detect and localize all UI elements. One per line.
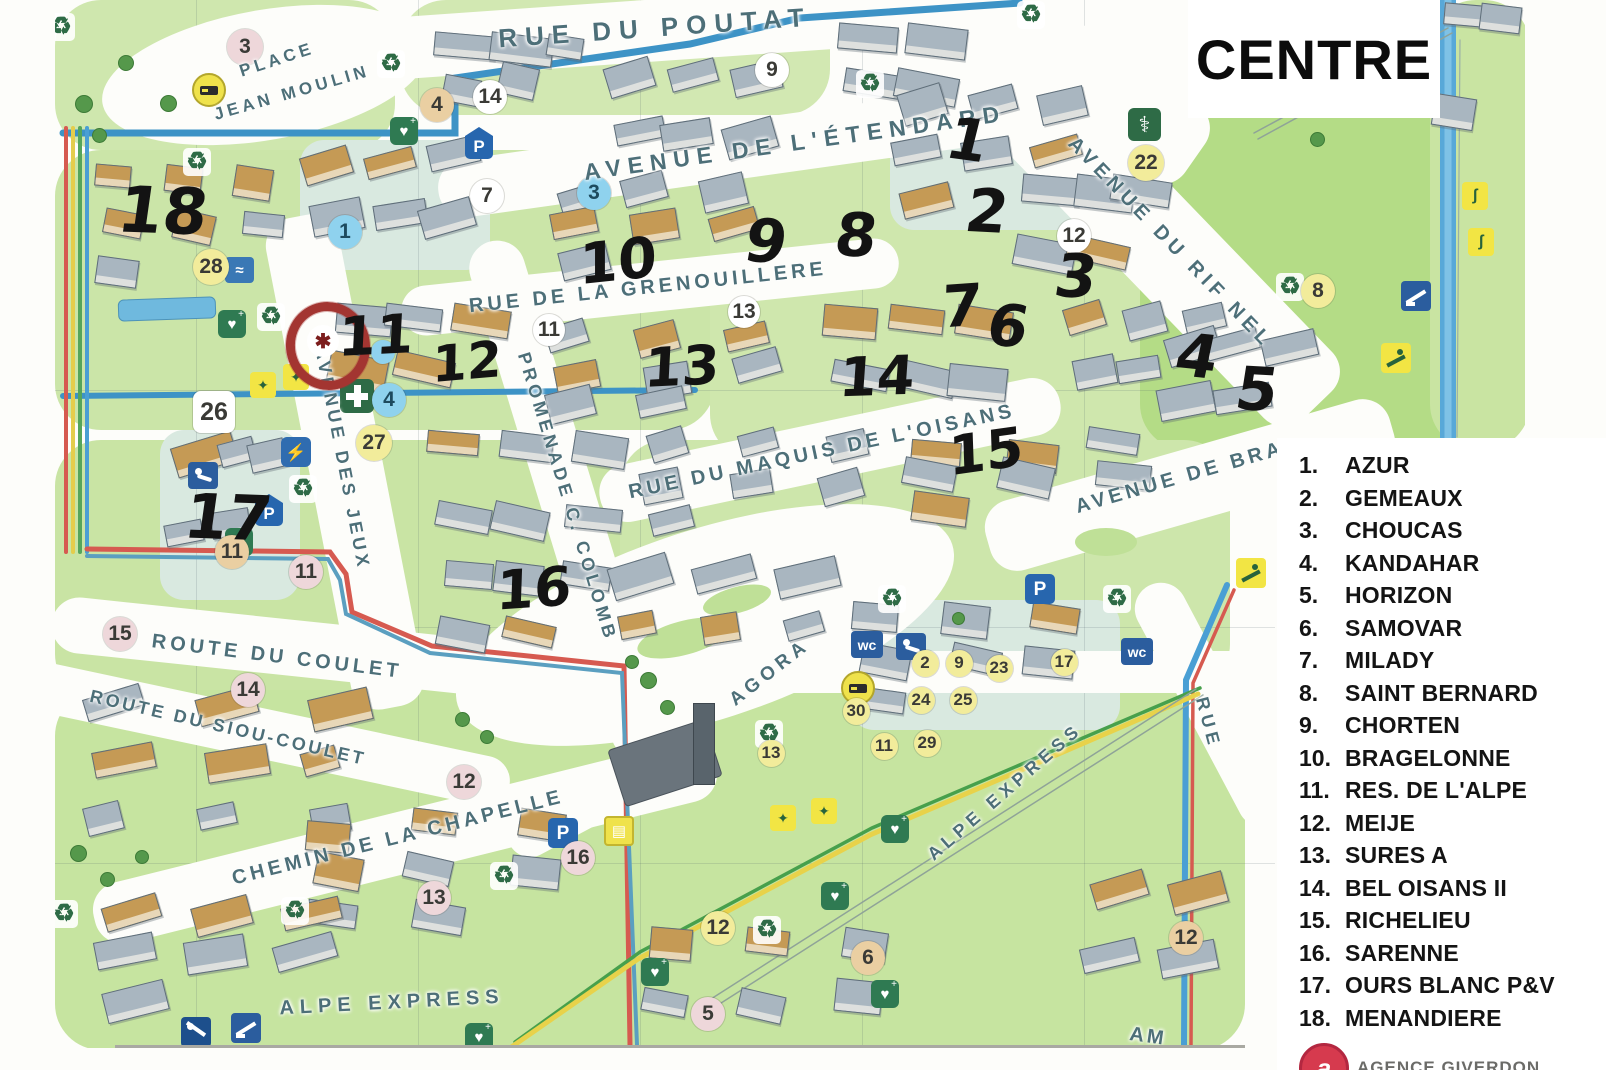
map-marker-1: 1	[328, 215, 362, 249]
legend-item: 11.RES. DE L'ALPE	[1299, 777, 1606, 810]
tree	[135, 850, 149, 864]
map-marker-30: 30	[843, 698, 870, 725]
building	[94, 255, 139, 289]
map-marker-4: 4	[420, 88, 454, 122]
legend-item: 9.CHORTEN	[1299, 712, 1606, 745]
handwritten-number-8: 8	[831, 205, 881, 266]
building	[837, 22, 899, 53]
handwritten-number-18: 18	[114, 179, 212, 246]
recycle-icon: ♻	[1276, 273, 1304, 301]
legend-item: 17.OURS BLANC P&V	[1299, 972, 1606, 1005]
legend-item: 16.SARENNE	[1299, 940, 1606, 973]
handwritten-number-16: 16	[496, 559, 573, 619]
map-marker-12: 12	[447, 765, 481, 799]
tree	[70, 845, 87, 862]
legend-item-number: 14.	[1299, 875, 1345, 902]
building	[822, 304, 879, 341]
map-marker-9: 9	[946, 650, 973, 677]
tree	[118, 55, 134, 71]
legend-item-label: MEIJE	[1345, 810, 1415, 837]
legend-item: 5.HORIZON	[1299, 582, 1606, 615]
legend-panel: 1.AZUR2.GEMEAUX3.CHOUCAS4.KANDAHAR5.HORI…	[1277, 438, 1606, 1070]
legend-item-number: 13.	[1299, 842, 1345, 869]
map-marker-13: 13	[758, 740, 785, 767]
tree	[100, 872, 115, 887]
tree	[480, 730, 494, 744]
defibrillator-icon: ♥	[881, 815, 909, 843]
map-marker-16: 16	[561, 841, 595, 875]
land-area	[1430, 0, 1530, 450]
legend-item-label: BRAGELONNE	[1345, 745, 1511, 772]
legend-item-label: OURS BLANC P&V	[1345, 972, 1555, 999]
handwritten-number-7: 7	[941, 275, 983, 336]
legend-item: 13.SURES A	[1299, 842, 1606, 875]
map-marker-13: 13	[728, 296, 760, 328]
building	[1479, 3, 1523, 35]
map-marker-27: 27	[356, 425, 392, 461]
legend-item: 14.BEL OISANS II	[1299, 875, 1606, 908]
legend-item-number: 12.	[1299, 810, 1345, 837]
ev-plug-icon: ⚡	[281, 437, 311, 467]
skier-icon	[1381, 343, 1411, 373]
legend-item: 6.SAMOVAR	[1299, 615, 1606, 648]
legend-item-label: CHORTEN	[1345, 712, 1460, 739]
legend-item: 4.KANDAHAR	[1299, 550, 1606, 583]
tree	[160, 95, 177, 112]
legend-item-number: 17.	[1299, 972, 1345, 999]
legend-item-label: RICHELIEU	[1345, 907, 1471, 934]
building	[242, 211, 285, 238]
playground-icon: ✦	[250, 372, 276, 398]
recycle-icon: ♻	[856, 70, 884, 98]
handwritten-number-15: 15	[948, 420, 1024, 485]
recycle-icon: ♻	[257, 303, 285, 331]
building	[940, 601, 991, 639]
legend-item-label: SAMOVAR	[1345, 615, 1462, 642]
building	[946, 363, 1008, 402]
defibrillator-icon: ♥	[871, 980, 899, 1008]
handwritten-number-17: 17	[181, 486, 276, 551]
tree	[92, 128, 107, 143]
legend-list: 1.AZUR2.GEMEAUX3.CHOUCAS4.KANDAHAR5.HORI…	[1299, 452, 1606, 1037]
handwritten-number-14: 14	[838, 349, 917, 406]
church-tower	[693, 703, 715, 785]
recycle-icon: ♻	[1017, 1, 1045, 29]
defibrillator-icon: ♥	[390, 117, 418, 145]
agency-name: AGENCE GIVERDON	[1357, 1058, 1540, 1070]
map-marker-9: 9	[755, 53, 789, 87]
scan-right-margin	[1525, 0, 1606, 440]
map-title-box: CENTRE	[1188, 0, 1440, 118]
recycle-icon: ♻	[281, 897, 309, 925]
map-marker-29: 29	[914, 730, 941, 757]
swimming-icon: ≈	[225, 257, 254, 283]
map-marker-17: 17	[1051, 649, 1078, 676]
map-marker-15: 15	[103, 617, 137, 651]
legend-item-number: 7.	[1299, 647, 1345, 674]
map-marker-26: 26	[193, 391, 235, 433]
map-marker-12: 12	[1169, 921, 1203, 955]
building	[444, 560, 494, 590]
legend-item-label: HORIZON	[1345, 582, 1452, 609]
agency-logo: a	[1299, 1043, 1349, 1070]
map-marker-11: 11	[871, 733, 898, 760]
playground-icon: ✦	[811, 798, 837, 824]
tree	[952, 612, 965, 625]
legend-item: 15.RICHELIEU	[1299, 907, 1606, 940]
map-marker-11: 11	[533, 314, 565, 346]
tree	[660, 700, 675, 715]
handwritten-number-13: 13	[643, 338, 721, 396]
legend-item: 3.CHOUCAS	[1299, 517, 1606, 550]
legend-item-number: 6.	[1299, 615, 1345, 642]
tree	[455, 712, 470, 727]
map-marker-24: 24	[908, 687, 935, 714]
handwritten-number-11: 11	[337, 307, 415, 365]
legend-item-label: MILADY	[1345, 647, 1434, 674]
legend-item-label: GEMEAUX	[1345, 485, 1463, 512]
map-title: CENTRE	[1196, 27, 1432, 92]
legend-item-number: 2.	[1299, 485, 1345, 512]
building	[700, 611, 741, 645]
legend-item-number: 18.	[1299, 1005, 1345, 1032]
legend-item-label: RES. DE L'ALPE	[1345, 777, 1527, 804]
building	[1021, 174, 1081, 207]
map-marker-5: 5	[691, 997, 725, 1031]
map-marker-12: 12	[701, 911, 735, 945]
tree	[640, 672, 657, 689]
doctor-icon: ⚕	[1128, 108, 1161, 141]
building	[232, 164, 275, 202]
recycle-icon: ♻	[1103, 585, 1131, 613]
parking-icon: P	[1025, 574, 1055, 604]
swimming-pool	[118, 296, 217, 321]
legend-item-number: 15.	[1299, 907, 1345, 934]
defibrillator-icon: ♥	[218, 310, 246, 338]
handwritten-number-12: 12	[432, 334, 502, 390]
ski-jump-icon	[231, 1013, 261, 1043]
tree	[625, 655, 639, 669]
legend-item-number: 10.	[1299, 745, 1345, 772]
map-marker-13: 13	[417, 881, 451, 915]
legend-item-label: AZUR	[1345, 452, 1410, 479]
map-marker-23: 23	[986, 655, 1013, 682]
defibrillator-icon: ♥	[641, 958, 669, 986]
recycle-icon: ♻	[377, 50, 405, 78]
map-marker-11: 11	[289, 555, 323, 589]
legend-item-number: 11.	[1299, 777, 1345, 804]
handwritten-number-10: 10	[579, 230, 657, 294]
ski-jump-icon	[1401, 281, 1431, 311]
building	[649, 926, 694, 962]
legend-item-label: MENANDIERE	[1345, 1005, 1502, 1032]
recycle-icon: ♻	[753, 916, 781, 944]
agency-branding: a AGENCE GIVERDON	[1299, 1043, 1606, 1070]
legend-item-label: SAINT BERNARD	[1345, 680, 1538, 707]
recycle-icon: ♻	[183, 148, 211, 176]
luge-icon: ʃ	[1468, 228, 1494, 256]
legend-item: 1.AZUR	[1299, 452, 1606, 485]
building	[426, 430, 480, 456]
map-marker-7: 7	[470, 179, 504, 213]
map-marker-2: 2	[912, 650, 939, 677]
legend-item: 8.SAINT BERNARD	[1299, 680, 1606, 713]
wc-icon: wc	[851, 631, 883, 658]
scan-bottom-margin	[0, 1048, 1277, 1070]
legend-item-number: 4.	[1299, 550, 1345, 577]
legend-item-number: 5.	[1299, 582, 1345, 609]
recycle-icon: ♻	[490, 862, 518, 890]
legend-item: 7.MILADY	[1299, 647, 1606, 680]
recycle-icon: ♻	[878, 585, 906, 613]
legend-item-label: CHOUCAS	[1345, 517, 1463, 544]
legend-item-label: KANDAHAR	[1345, 550, 1479, 577]
resort-map: ♻♻♻♻♻♻♻♻♻♻♻♻♻♻♻PPPPwcwc⚡⚕♥♥♥♥♥♥♥♥▤✦✦✦✦ʃʃ…	[0, 0, 1606, 1070]
parking-pin-icon: P	[465, 127, 493, 159]
map-marker-14: 14	[473, 80, 507, 114]
legend-item-number: 8.	[1299, 680, 1345, 707]
legend-item: 18.MENANDIERE	[1299, 1005, 1606, 1038]
sledge-icon	[181, 1017, 211, 1047]
map-marker-8: 8	[1301, 274, 1335, 308]
legend-item: 2.GEMEAUX	[1299, 485, 1606, 518]
tree	[75, 95, 93, 113]
legend-item: 10.BRAGELONNE	[1299, 745, 1606, 778]
legend-item-label: SARENNE	[1345, 940, 1459, 967]
map-marker-14: 14	[231, 673, 265, 707]
legend-item-number: 16.	[1299, 940, 1345, 967]
planter	[1075, 528, 1137, 556]
legend-item-number: 3.	[1299, 517, 1345, 544]
playground-icon: ✦	[770, 805, 796, 831]
defibrillator-icon: ♥	[821, 882, 849, 910]
tree	[1310, 132, 1325, 147]
legend-item-label: SURES A	[1345, 842, 1448, 869]
skier-icon	[1236, 558, 1266, 588]
basket-icon: ▤	[604, 816, 634, 846]
building	[904, 22, 968, 60]
legend-item-label: BEL OISANS II	[1345, 875, 1507, 902]
legend-item: 12.MEIJE	[1299, 810, 1606, 843]
scan-left-margin	[0, 0, 55, 1070]
legend-item-number: 1.	[1299, 452, 1345, 479]
map-marker-4: 4	[372, 383, 406, 417]
wc-icon: wc	[1121, 638, 1153, 665]
map-marker-6: 6	[851, 941, 885, 975]
luge-icon: ʃ	[1462, 182, 1488, 210]
map-marker-22: 22	[1128, 145, 1164, 181]
map-marker-28: 28	[193, 249, 229, 285]
recycle-icon: ♻	[289, 475, 317, 503]
legend-item-number: 9.	[1299, 712, 1345, 739]
map-marker-25: 25	[950, 687, 977, 714]
